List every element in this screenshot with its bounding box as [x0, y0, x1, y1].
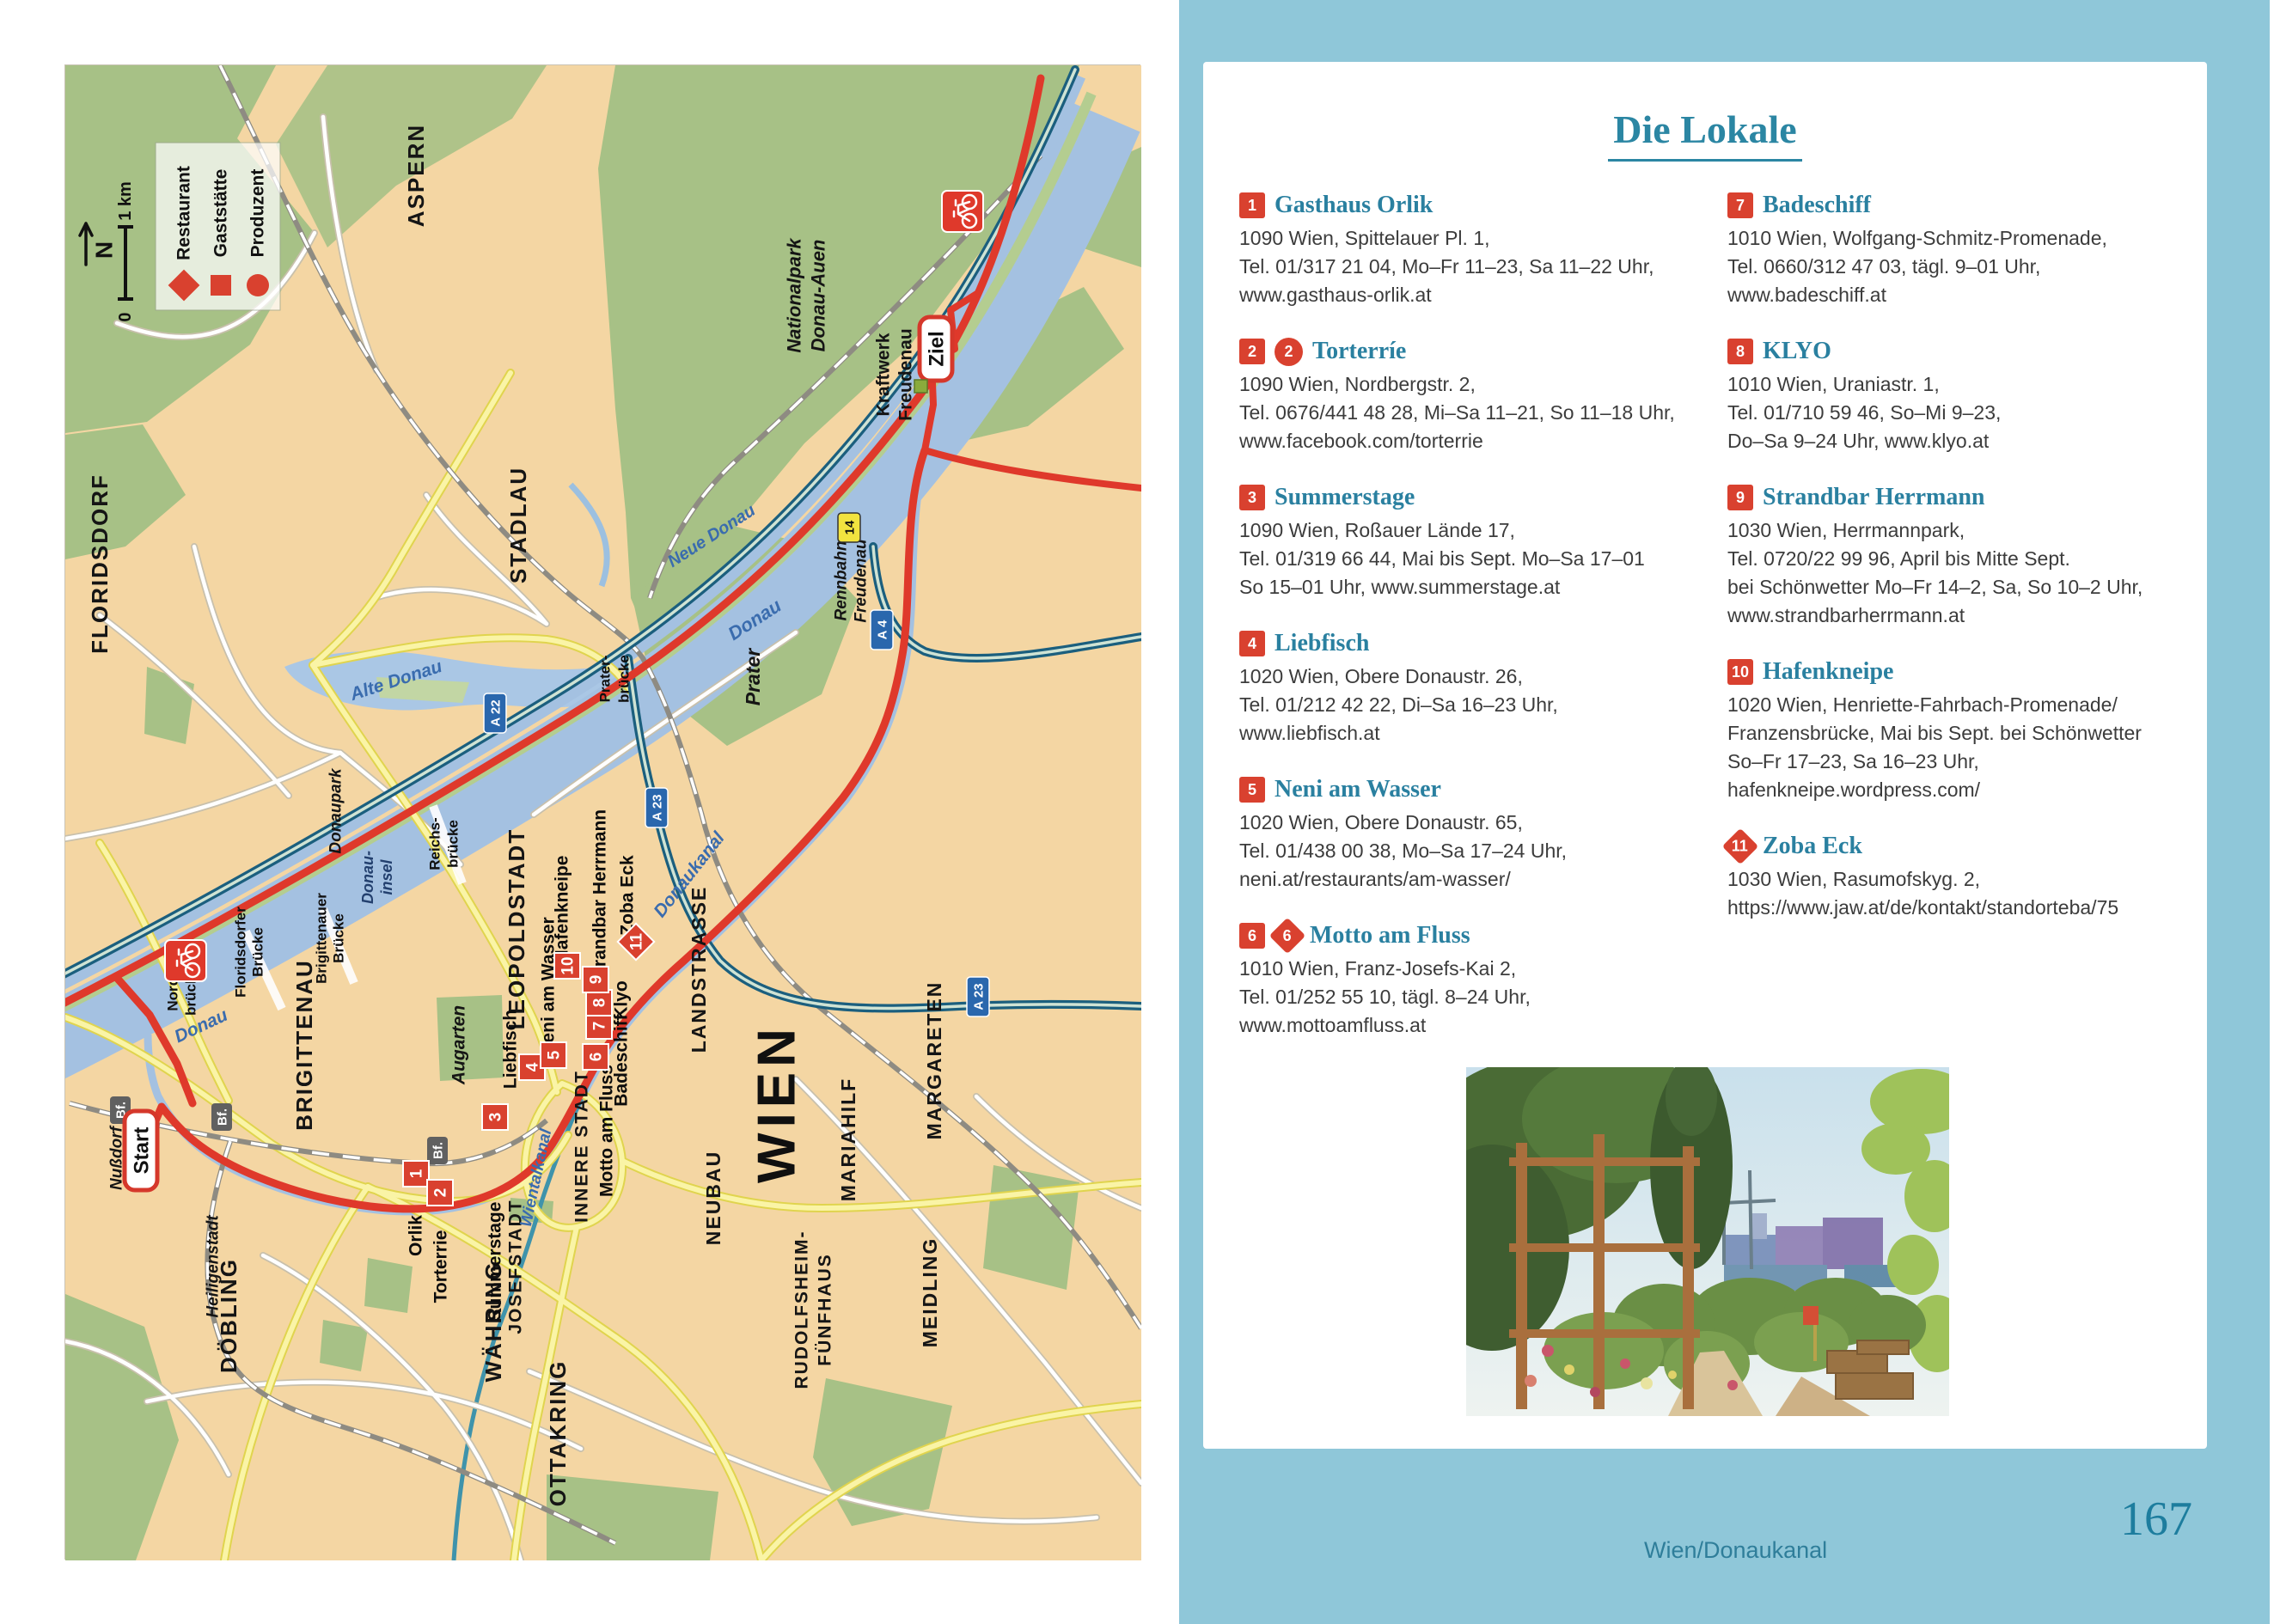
entry-name: Badeschiff — [1763, 192, 1871, 219]
lokal-entry-6: 66Motto am Fluss1010 Wien, Franz-Josefs-… — [1239, 921, 1703, 1040]
marker-badge-square-icon: 4 — [1239, 631, 1265, 656]
map-badge-a-22: A 22 — [484, 693, 506, 733]
map-marker-3: 3 — [482, 1104, 508, 1130]
entry-details: 1090 Wien, Nordbergstr. 2,Tel. 0676/441 … — [1239, 370, 1703, 455]
entry-name: Strandbar Herrmann — [1763, 484, 1985, 511]
entry-details: 1010 Wien, Franz-Josefs-Kai 2,Tel. 01/25… — [1239, 955, 1703, 1040]
entry-detail-line: 1010 Wien, Uraniastr. 1, — [1727, 370, 2191, 399]
map-label-prater: Prater- — [597, 656, 614, 703]
entry-head: 9Strandbar Herrmann — [1727, 483, 2191, 512]
svg-text:Start: Start — [131, 1127, 154, 1175]
entry-detail-line: Tel. 01/252 55 10, tägl. 8–24 Uhr, — [1239, 983, 1703, 1011]
marker-badge-square-icon: 2 — [1239, 339, 1265, 364]
map-label-freudenau: Freudenau — [896, 328, 916, 420]
lokal-entry-11: 11Zoba Eck1030 Wien, Rasumofskyg. 2,http… — [1727, 832, 2191, 922]
map-badge-bf: Bf. — [211, 1103, 232, 1131]
entry-name: Motto am Fluss — [1310, 922, 1470, 949]
svg-text:Bf.: Bf. — [216, 1108, 230, 1126]
marker-badge-square-icon: 10 — [1727, 659, 1753, 685]
legend-label-produzent: Produzent — [248, 169, 268, 258]
entry-detail-line: www.mottoamfluss.at — [1239, 1011, 1703, 1040]
svg-text:7: 7 — [591, 1022, 609, 1031]
right-page: Die Lokale 1Gasthaus Orlik1090 Wien, Spi… — [1179, 0, 2270, 1624]
lokal-entry-1: 1Gasthaus Orlik1090 Wien, Spittelauer Pl… — [1239, 191, 1703, 309]
entries-column-right: 7Badeschiff1010 Wien, Wolfgang-Schmitz-P… — [1727, 191, 2191, 949]
map-label-wien: WIEN — [748, 1023, 807, 1183]
garden-photo-svg — [1466, 1067, 1949, 1416]
entry-head: 11Zoba Eck — [1727, 832, 2191, 861]
entry-head: 8KLYO — [1727, 337, 2191, 366]
map-label-brigittenau: BRIGITTENAU — [291, 959, 317, 1131]
entry-detail-line: 1020 Wien, Obere Donaustr. 26, — [1239, 662, 1703, 691]
entry-detail-line: Tel. 01/212 42 22, Di–Sa 16–23 Uhr, — [1239, 691, 1703, 719]
entry-detail-line: www.strandbarherrmann.at — [1727, 601, 2191, 630]
map-label-leopoldstadt: LEOPOLDSTADT — [504, 828, 529, 1029]
map-badge-a-23: A 23 — [967, 977, 989, 1017]
map-label-mariahilf: MARIAHILF — [837, 1078, 859, 1201]
map-marker-6: 6 — [583, 1044, 608, 1070]
svg-text:10: 10 — [559, 956, 578, 974]
map-badge-a-4: A 4 — [871, 610, 893, 650]
scale-zero-label: 0 — [116, 312, 135, 321]
vienna-route-map: FLORIDSDORFASPERNSTADLAUDÖBLINGBRIGITTEN… — [64, 64, 1140, 1560]
entry-head: 66Motto am Fluss — [1239, 921, 1703, 950]
map-marker-7: 7 — [586, 1013, 612, 1039]
entry-name: Hafenkneipe — [1763, 658, 1893, 686]
entry-details: 1020 Wien, Obere Donaustr. 65,Tel. 01/43… — [1239, 809, 1703, 894]
entries-column-left: 1Gasthaus Orlik1090 Wien, Spittelauer Pl… — [1239, 191, 1703, 1067]
map-label-brigittenauer: Brigittenauer — [314, 893, 330, 984]
entry-details: 1030 Wien, Herrmannpark,Tel. 0720/22 99 … — [1727, 516, 2191, 630]
entry-details: 1020 Wien, Henriette-Fahrbach-Promenade/… — [1727, 691, 2191, 804]
legend-label-gastst-tte: Gaststätte — [211, 169, 231, 258]
map-badge-14: 14 — [838, 513, 860, 542]
entry-detail-line: 1090 Wien, Roßauer Lände 17, — [1239, 516, 1703, 545]
kraftwerk-square — [914, 380, 927, 393]
svg-text:8: 8 — [591, 998, 609, 1008]
entry-detail-line: 1030 Wien, Herrmannpark, — [1727, 516, 2191, 545]
entry-head: 5Neni am Wasser — [1239, 775, 1703, 804]
page-title: Die Lokale — [1608, 107, 1801, 162]
map-label-donau: Donau- — [359, 851, 376, 904]
map-label-br-cke: Brücke — [331, 913, 347, 963]
map-start-label: Start — [125, 1111, 157, 1190]
map-label-reichs: Reichs- — [427, 817, 443, 870]
marker-badge-square-icon: 7 — [1727, 192, 1753, 218]
legend-label-restaurant: Restaurant — [174, 166, 194, 260]
svg-text:11: 11 — [628, 933, 646, 951]
lokal-entry-8: 8KLYO1010 Wien, Uraniastr. 1,Tel. 01/710… — [1727, 337, 2191, 455]
svg-text:1: 1 — [408, 1169, 426, 1178]
bicycle-icon — [942, 191, 983, 232]
entry-head: 3Summerstage — [1239, 483, 1703, 512]
entry-detail-line: Do–Sa 9–24 Uhr, www.klyo.at — [1727, 427, 2191, 455]
map-marker-5: 5 — [541, 1042, 566, 1068]
map-label-hafenkneipe: Hafenkneipe — [553, 856, 572, 963]
lokal-entry-7: 7Badeschiff1010 Wien, Wolfgang-Schmitz-P… — [1727, 191, 2191, 309]
map-label-klyo: Klyo — [612, 980, 632, 1020]
marker-badge-square-icon: 9 — [1727, 485, 1753, 510]
entry-detail-line: 1090 Wien, Spittelauer Pl. 1, — [1239, 224, 1703, 253]
entry-head: 22Torterríe — [1239, 337, 1703, 366]
map-label-f-nfhaus: FÜNFHAUS — [816, 1253, 835, 1366]
map-label-aspern: ASPERN — [403, 124, 429, 227]
entry-details: 1010 Wien, Wolfgang-Schmitz-Promenade,Te… — [1727, 224, 2191, 309]
map-label-innere-stadt: INNERE STADT — [572, 1070, 592, 1223]
entry-details: 1090 Wien, Roßauer Lände 17,Tel. 01/319 … — [1239, 516, 1703, 601]
entry-detail-line: 1090 Wien, Nordbergstr. 2, — [1239, 370, 1703, 399]
book-spread: FLORIDSDORFASPERNSTADLAUDÖBLINGBRIGITTEN… — [0, 0, 2274, 1624]
lokal-entry-3: 3Summerstage1090 Wien, Roßauer Lände 17,… — [1239, 483, 1703, 601]
marker-badge-diamond-icon: 11 — [1722, 828, 1758, 864]
entry-detail-line: www.gasthaus-orlik.at — [1239, 281, 1703, 309]
entry-detail-line: Tel. 0676/441 48 28, Mi–Sa 11–21, So 11–… — [1239, 399, 1703, 427]
entry-name: Zoba Eck — [1763, 833, 1862, 860]
entry-detail-line: Tel. 0660/312 47 03, tägl. 9–01 Uhr, — [1727, 253, 2191, 281]
entry-detail-line: Franzensbrücke, Mai bis Sept. bei Schönw… — [1727, 719, 2191, 748]
entry-details: 1020 Wien, Obere Donaustr. 26,Tel. 01/21… — [1239, 662, 1703, 748]
bicycle-icon — [165, 940, 206, 981]
garden-photo — [1466, 1067, 1949, 1416]
map-label-torterrie: Torterrie — [431, 1230, 451, 1303]
entry-detail-line: 1010 Wien, Wolfgang-Schmitz-Promenade, — [1727, 224, 2191, 253]
svg-text:2: 2 — [432, 1188, 450, 1198]
entry-head: 10Hafenkneipe — [1727, 657, 2191, 687]
marker-badge-square-icon: 5 — [1239, 777, 1265, 803]
entry-name: Summerstage — [1275, 484, 1415, 511]
entry-detail-line: www.facebook.com/torterrie — [1239, 427, 1703, 455]
map-label-meidling: MEIDLING — [919, 1237, 941, 1347]
entry-head: 7Badeschiff — [1727, 191, 2191, 220]
marker-badge-diamond-icon: 6 — [1269, 918, 1305, 954]
entry-detail-line: Tel. 01/710 59 46, So–Mi 9–23, — [1727, 399, 2191, 427]
entry-detail-line: 1010 Wien, Franz-Josefs-Kai 2, — [1239, 955, 1703, 983]
map-label-zoba-eck: Zoba Eck — [618, 855, 638, 936]
map-label-donaupark: Donaupark — [327, 767, 345, 854]
map-marker-1: 1 — [403, 1161, 429, 1187]
entry-detail-line: bei Schönwetter Mo–Fr 14–2, Sa, So 10–2 … — [1727, 573, 2191, 601]
lokal-entry-10: 10Hafenkneipe1020 Wien, Henriette-Fahrba… — [1727, 657, 2191, 804]
map-label-badeschiff: Badeschiff — [612, 1013, 632, 1106]
entry-detail-line: hafenkneipe.wordpress.com/ — [1727, 776, 2191, 804]
map-label-augarten: Augarten — [449, 1005, 469, 1085]
svg-text:A 4: A 4 — [876, 620, 890, 639]
map-badge-bf: Bf. — [427, 1137, 448, 1164]
entry-details: 1010 Wien, Uraniastr. 1,Tel. 01/710 59 4… — [1727, 370, 2191, 455]
entry-detail-line: 1020 Wien, Henriette-Fahrbach-Promenade/ — [1727, 691, 2191, 719]
map-label-liebfisch: Liebfisch — [501, 1010, 521, 1089]
entry-name: KLYO — [1763, 338, 1831, 365]
entry-detail-line: Tel. 01/317 21 04, Mo–Fr 11–23, Sa 11–22… — [1239, 253, 1703, 281]
map-label-donau-auen: Donau-Auen — [808, 240, 829, 352]
map-label-floridsdorf: FLORIDSDORF — [87, 473, 113, 654]
legend-circle-icon — [247, 274, 269, 296]
map-label-margareten: MARGARETEN — [923, 981, 945, 1140]
map-ziel-label: Ziel — [920, 317, 952, 381]
north-label: N — [91, 241, 118, 259]
map-label-insel: insel — [378, 858, 395, 894]
scale-one-km-label: 1 km — [116, 181, 135, 221]
marker-badge-square-icon: 1 — [1239, 192, 1265, 218]
entry-head: 4Liebfisch — [1239, 629, 1703, 658]
map-label-nationalpark: Nationalpark — [784, 237, 805, 353]
map-label-stadlau: STADLAU — [505, 467, 531, 583]
svg-text:Bf.: Bf. — [431, 1142, 446, 1159]
lokal-entry-4: 4Liebfisch1020 Wien, Obere Donaustr. 26,… — [1239, 629, 1703, 748]
marker-badge-square-icon: 3 — [1239, 485, 1265, 510]
lokal-entry-9: 9Strandbar Herrmann1030 Wien, Herrmannpa… — [1727, 483, 2191, 630]
svg-text:6: 6 — [588, 1053, 606, 1062]
map-label-landstrasse: LANDSTRASSE — [688, 886, 710, 1053]
map-label-strandbar-herrmann: Strandbar Herrmann — [590, 809, 610, 985]
map-label-br-cke: Brücke — [250, 927, 266, 977]
map-label-kraftwerk: Kraftwerk — [874, 333, 894, 416]
svg-text:A 22: A 22 — [489, 699, 504, 726]
map-label-freudenau: Freudenau — [853, 539, 871, 623]
map-label-br-cke: brücke — [445, 820, 462, 868]
entry-name: Liebfisch — [1275, 630, 1369, 657]
entry-detail-line: https://www.jaw.at/de/kontakt/standorteb… — [1727, 894, 2191, 922]
entry-name: Neni am Wasser — [1275, 776, 1441, 803]
svg-text:3: 3 — [487, 1113, 505, 1122]
map-label-neubau: NEUBAU — [702, 1151, 724, 1245]
entry-detail-line: 1030 Wien, Rasumofskyg. 2, — [1727, 865, 2191, 894]
entry-name: Gasthaus Orlik — [1275, 192, 1433, 219]
map-label-rennbahn: Rennbahn — [833, 541, 851, 621]
svg-text:A 23: A 23 — [972, 983, 987, 1010]
entry-detail-line: www.badeschiff.at — [1727, 281, 2191, 309]
lokal-entry-5: 5Neni am Wasser1020 Wien, Obere Donaustr… — [1239, 775, 1703, 894]
lokale-card: Die Lokale 1Gasthaus Orlik1090 Wien, Spi… — [1203, 62, 2207, 1449]
entry-detail-line: Tel. 01/319 66 44, Mai bis Sept. Mo–Sa 1… — [1239, 545, 1703, 573]
map-label-rudolfsheim: RUDOLFSHEIM- — [792, 1230, 812, 1389]
map-label-summerstage: Summerstage — [486, 1202, 505, 1322]
marker-badge-square-icon: 8 — [1727, 339, 1753, 364]
map-label-orlik: Orlik — [407, 1215, 426, 1256]
entry-detail-line: 1020 Wien, Obere Donaustr. 65, — [1239, 809, 1703, 837]
legend-square-icon — [211, 275, 231, 296]
entry-name: Torterríe — [1312, 338, 1406, 365]
svg-text:5: 5 — [546, 1050, 564, 1059]
map-label-floridsdorfer: Floridsdorfer — [233, 907, 249, 998]
entry-detail-line: Tel. 0720/22 99 96, April bis Mitte Sept… — [1727, 545, 2191, 573]
page-number: 167 — [2120, 1492, 2249, 1547]
svg-text:Ziel: Ziel — [926, 331, 949, 366]
entry-detail-line: Tel. 01/438 00 38, Mo–Sa 17–24 Uhr, — [1239, 837, 1703, 865]
map-marker-2: 2 — [427, 1180, 453, 1206]
map-label-ottakring: OTTAKRING — [545, 1360, 571, 1507]
svg-text:A 23: A 23 — [651, 794, 665, 821]
entry-details: 1030 Wien, Rasumofskyg. 2,https://www.ja… — [1727, 865, 2191, 922]
entry-detail-line: So–Fr 17–23, Sa 16–23 Uhr, — [1727, 748, 2191, 776]
entry-detail-line: www.liebfisch.at — [1239, 719, 1703, 748]
lokal-entry-2: 22Torterríe1090 Wien, Nordbergstr. 2,Tel… — [1239, 337, 1703, 455]
map-label-heiligenstadt: Heiligenstadt — [205, 1215, 223, 1318]
entry-detail-line: So 15–01 Uhr, www.summerstage.at — [1239, 573, 1703, 601]
map-label-prater: Prater — [742, 648, 764, 706]
svg-text:4: 4 — [524, 1062, 542, 1071]
marker-badge-circle-icon: 2 — [1275, 338, 1303, 366]
entry-head: 1Gasthaus Orlik — [1239, 191, 1703, 220]
footer-chapter-label: Wien/Donaukanal — [1644, 1537, 1827, 1564]
marker-badge-square-icon: 6 — [1239, 923, 1265, 949]
map-marker-10: 10 — [554, 953, 580, 979]
svg-text:14: 14 — [843, 520, 858, 534]
map-badge-a-23: A 23 — [645, 788, 668, 827]
svg-text:9: 9 — [588, 975, 606, 985]
left-page: FLORIDSDORFASPERNSTADLAUDÖBLINGBRIGITTEN… — [0, 0, 1179, 1624]
map-svg: FLORIDSDORFASPERNSTADLAUDÖBLINGBRIGITTEN… — [65, 65, 1141, 1560]
map-marker-8: 8 — [586, 990, 612, 1016]
map-marker-9: 9 — [583, 967, 608, 992]
map-label-br-cke: brücke — [616, 655, 633, 703]
entry-details: 1090 Wien, Spittelauer Pl. 1,Tel. 01/317… — [1239, 224, 1703, 309]
entry-detail-line: neni.at/restaurants/am-wasser/ — [1239, 865, 1703, 894]
